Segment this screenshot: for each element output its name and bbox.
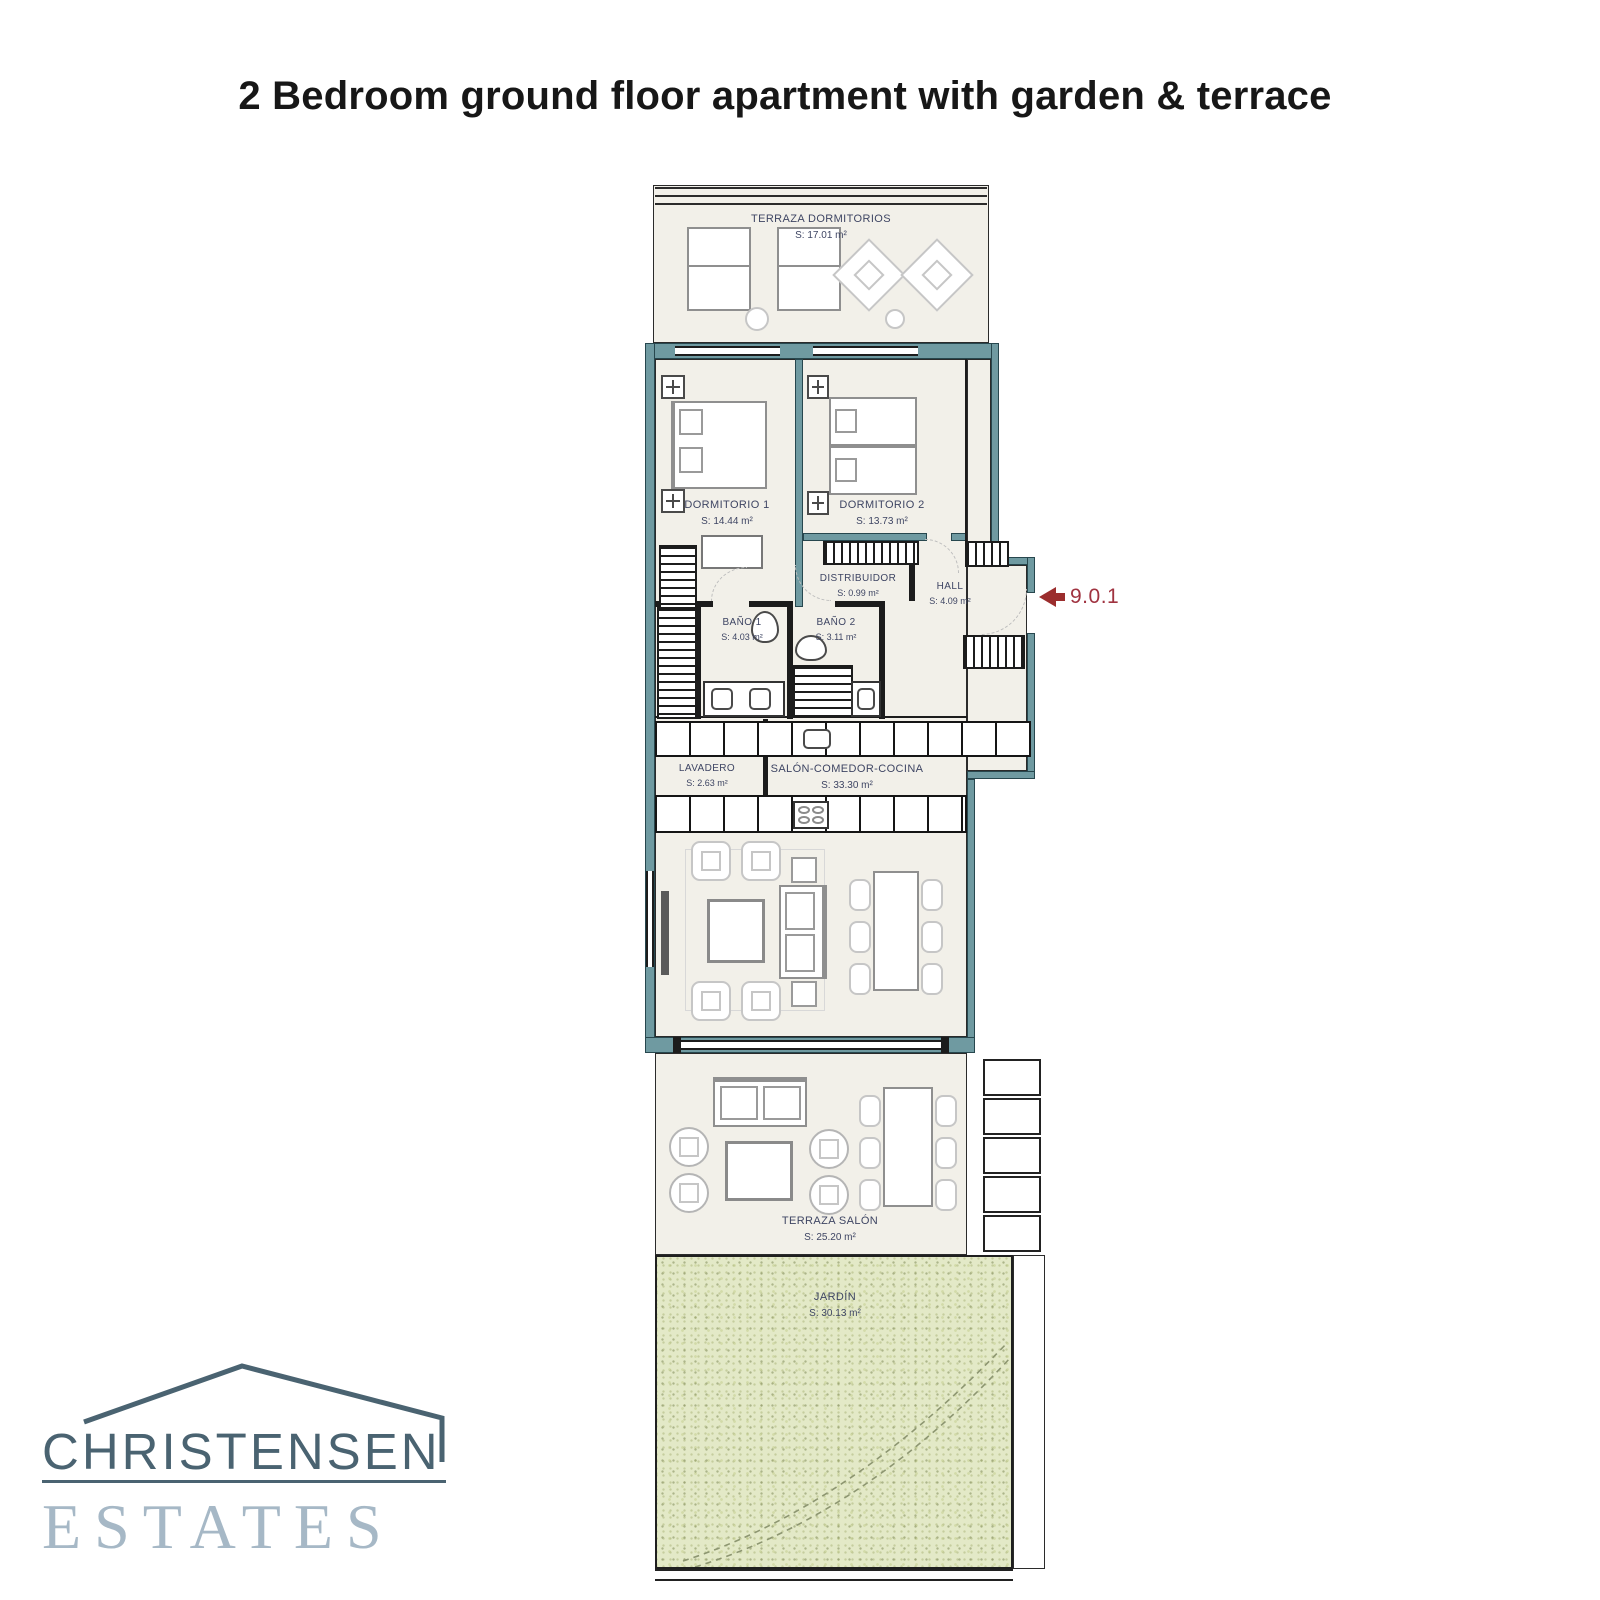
sofa-cushion — [785, 892, 815, 930]
dining-table — [873, 871, 919, 991]
nightstand-switch-1 — [661, 375, 685, 399]
dresser-dorm1 — [701, 535, 763, 569]
armchair-3 — [691, 981, 731, 1021]
kitchen-counter-top — [655, 721, 1031, 757]
planter-box — [983, 1215, 1041, 1252]
window-dormitorio-2 — [813, 346, 918, 356]
cooktop — [793, 801, 829, 829]
logo-estates-text: ESTATES — [42, 1490, 452, 1564]
terrace-coffee-table — [725, 1141, 793, 1201]
wall-jut-right-a — [1027, 557, 1035, 593]
terrace-sofa — [713, 1077, 807, 1127]
chair-seat — [819, 1139, 839, 1159]
vanity-bano2 — [851, 681, 881, 717]
room-label-hall: HALL S: 4.09 m² — [929, 579, 971, 608]
sofa-cushion — [720, 1086, 758, 1120]
sofa-cushion — [763, 1086, 801, 1120]
sofa-cushion — [785, 934, 815, 972]
pillow — [835, 409, 857, 433]
terrace-dining-chair — [935, 1137, 957, 1169]
room-label-jardin: JARDÍN S: 30.13 m² — [809, 1289, 861, 1322]
wall-jut-bottom — [967, 771, 1035, 779]
chair-seat — [679, 1137, 699, 1157]
page: 2 Bedroom ground floor apartment with ga… — [0, 0, 1600, 1600]
dining-chair — [849, 963, 871, 995]
sink — [857, 688, 875, 710]
dining-chair — [921, 879, 943, 911]
terrace-dining-chair — [859, 1179, 881, 1211]
terrace-dining-chair — [859, 1095, 881, 1127]
sun-lounger-1 — [687, 227, 751, 311]
dining-chair — [849, 879, 871, 911]
page-title: 2 Bedroom ground floor apartment with ga… — [0, 74, 1570, 119]
terrace-chair-seat — [921, 259, 952, 290]
wall-right-upper — [991, 343, 999, 565]
partition-shower-wall — [697, 607, 701, 719]
wall-dorm2-south-a — [803, 533, 927, 541]
partition-bath-top-c — [835, 601, 885, 607]
partition-strip-left — [965, 359, 967, 557]
pillow — [835, 458, 857, 482]
wardrobe-dorm2 — [823, 541, 919, 565]
nightstand-switch-2 — [661, 489, 685, 513]
planter-box — [983, 1098, 1041, 1135]
terrace-side-table-2 — [885, 309, 905, 329]
side-table-2 — [791, 981, 817, 1007]
room-label-distribuidor: DISTRIBUIDOR S: 0.99 m² — [820, 571, 896, 600]
room-label-lavadero: LAVADERO S: 2.63 m² — [679, 761, 735, 790]
closet-strip-floor — [967, 359, 991, 557]
sink — [749, 688, 771, 710]
window-living-terrace — [681, 1040, 941, 1050]
hall-closet-top — [965, 541, 1009, 567]
single-bed-2 — [829, 446, 917, 495]
terrace-parapet — [655, 187, 987, 207]
planter-box — [983, 1176, 1041, 1213]
nightstand-switch-4 — [807, 491, 829, 515]
arrow-head — [1039, 587, 1056, 607]
garden-fence — [655, 1569, 1013, 1581]
arrow-tail — [1055, 593, 1065, 601]
pillow — [679, 447, 703, 473]
brand-logo: CHRISTENSEN ESTATES — [42, 1356, 452, 1576]
chair-seat — [819, 1185, 839, 1205]
side-table-1 — [791, 857, 817, 883]
terrace-side-table-1 — [745, 307, 769, 331]
room-label-bano-1: BAÑO 1 S: 4.03 m² — [721, 615, 763, 644]
shower-bano2 — [793, 665, 853, 717]
planter-box — [983, 1137, 1041, 1174]
nightstand-switch-3 — [807, 375, 829, 399]
wall-jut-right-b — [1027, 633, 1035, 779]
logo-divider — [42, 1480, 446, 1483]
armchair-seat — [751, 851, 771, 871]
lounger-divider — [687, 265, 751, 267]
unit-ref-label: 9.0.1 — [1070, 585, 1119, 609]
sink — [711, 688, 733, 710]
logo-name-text: CHRISTENSEN — [42, 1422, 452, 1481]
chair-seat — [679, 1183, 699, 1203]
hall-closet-bottom — [963, 635, 1025, 669]
terrace-round-chair-3 — [809, 1129, 849, 1169]
dining-chair — [921, 921, 943, 953]
terrace-round-chair-1 — [669, 1127, 709, 1167]
garden-side-gutter — [1013, 1255, 1045, 1569]
armchair-1 — [691, 841, 731, 881]
pillow — [679, 409, 703, 435]
coffee-table — [707, 899, 765, 963]
lounger-divider — [777, 265, 841, 267]
armchair-seat — [751, 991, 771, 1011]
tv-unit — [661, 891, 669, 975]
terrace-round-chair-4 — [809, 1175, 849, 1215]
terrace-dining-table — [883, 1087, 933, 1207]
armchair-seat — [701, 991, 721, 1011]
room-label-terraza-dormitorios: TERRAZA DORMITORIOS S: 17.01 m² — [751, 211, 891, 244]
terrace-dining-chair — [859, 1137, 881, 1169]
armchair-seat — [701, 851, 721, 871]
armchair-2 — [741, 841, 781, 881]
entrance-arrow-icon — [1039, 587, 1065, 607]
terrace-dining-chair — [935, 1179, 957, 1211]
wall-right-lower — [967, 779, 975, 1045]
window-post-right — [941, 1037, 949, 1053]
room-label-salon-comedor-cocina: SALÓN-COMEDOR-COCINA S: 33.30 m² — [771, 761, 924, 794]
terrace-dining-chair — [935, 1095, 957, 1127]
room-label-bano-2: BAÑO 2 S: 3.11 m² — [816, 615, 857, 644]
window-dormitorio-1 — [675, 346, 780, 356]
dining-chair — [921, 963, 943, 995]
single-bed-1 — [829, 397, 917, 446]
window-living-left — [646, 871, 654, 967]
sofa — [779, 885, 827, 979]
room-label-dormitorio-2: DORMITORIO 2 S: 13.73 m² — [839, 497, 924, 530]
double-bed — [671, 401, 767, 489]
unit-entrance-marker: 9.0.1 — [1039, 585, 1119, 609]
dining-chair — [849, 921, 871, 953]
terrace-round-chair-2 — [669, 1173, 709, 1213]
shower-bano1 — [657, 607, 697, 719]
floor-plan: TERRAZA DORMITORIOS S: 17.01 m² DORMITOR… — [645, 183, 1165, 1583]
vanity-bano1 — [703, 681, 785, 717]
armchair-4 — [741, 981, 781, 1021]
terrace-chair-seat — [853, 259, 884, 290]
planter-box — [983, 1059, 1041, 1096]
window-post-left — [673, 1037, 681, 1053]
room-label-dormitorio-1: DORMITORIO 1 S: 14.44 m² — [684, 497, 769, 530]
room-label-terraza-salon: TERRAZA SALÓN S: 25.20 m² — [782, 1213, 878, 1246]
kitchen-sink — [803, 729, 831, 749]
